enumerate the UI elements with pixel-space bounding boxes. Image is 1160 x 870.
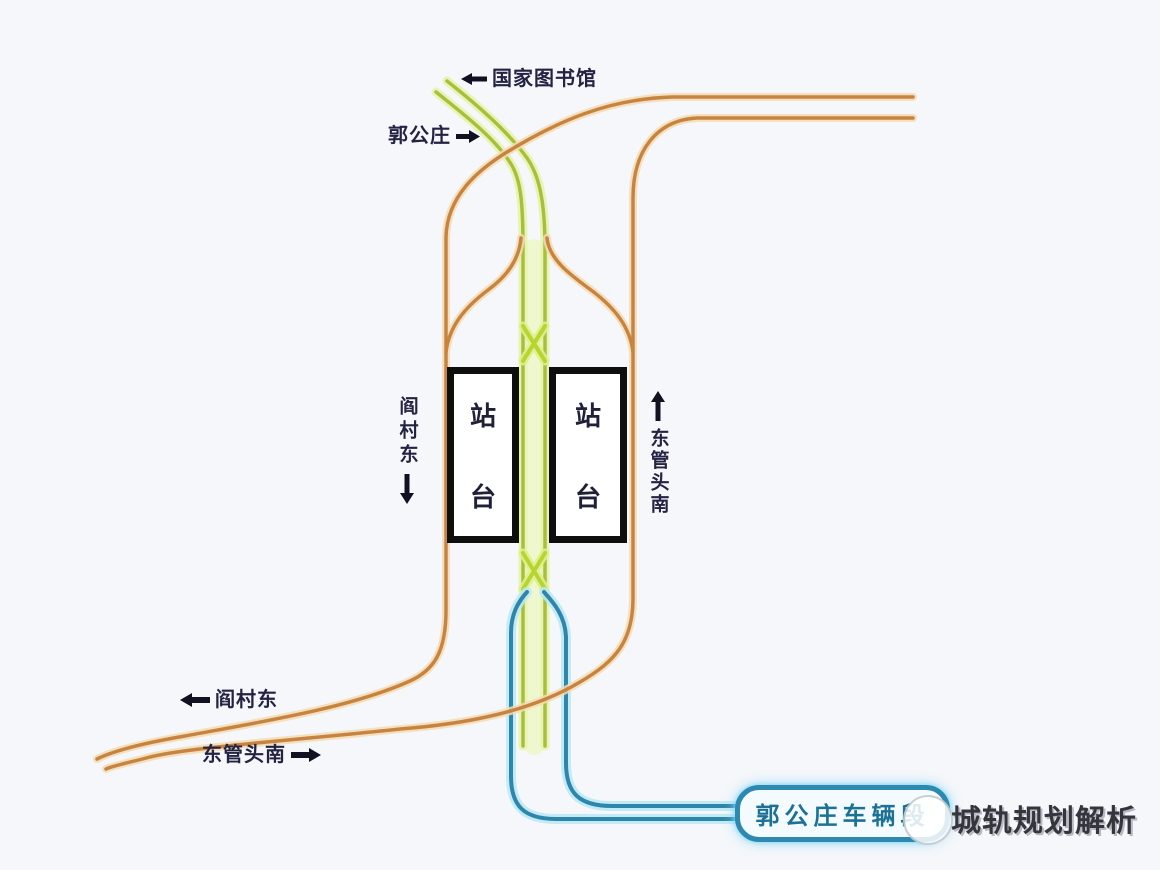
yancun-east-bottom-text: 阎村东 — [215, 690, 278, 710]
watermark-text: 城轨规划解析 — [951, 796, 1137, 840]
platform-right-top-char: 站 — [575, 396, 601, 433]
label-yancun-east-bottom: 阎村东 — [180, 690, 278, 710]
platform-right: 站 台 — [549, 367, 627, 543]
right-arrow-icon — [291, 748, 321, 762]
guogongzhuang-text: 郭公庄 — [388, 126, 451, 146]
label-yancun-east-side: 阎村东 — [393, 396, 421, 504]
label-national-library: 国家图书馆 — [461, 69, 597, 89]
dongguantou-south-side-text: 东管头南 — [649, 428, 668, 516]
up-arrow-icon — [651, 391, 665, 421]
dongguantou-south-bottom-text: 东管头南 — [202, 745, 286, 765]
left-arrow-icon — [461, 73, 487, 85]
right-arrow-icon — [456, 130, 480, 143]
track-map-canvas: 站 台 站 台 国家图书馆 郭公庄 阎村东 东管头南 — [0, 0, 1160, 870]
national-library-text: 国家图书馆 — [492, 69, 597, 89]
platform-left-bottom-char: 台 — [470, 477, 496, 514]
left-arrow-icon — [180, 693, 210, 707]
yancun-east-side-text: 阎村东 — [398, 396, 417, 468]
watermark-logo-circle — [903, 795, 953, 845]
label-dongguantou-south-side: 东管头南 — [644, 391, 672, 516]
down-arrow-icon — [400, 474, 414, 504]
platform-left-top-char: 站 — [470, 396, 496, 433]
label-dongguantou-south-bottom: 东管头南 — [202, 745, 321, 765]
platform-right-bottom-char: 台 — [575, 477, 601, 514]
label-guogongzhuang: 郭公庄 — [388, 126, 480, 146]
platform-left: 站 台 — [447, 367, 519, 543]
